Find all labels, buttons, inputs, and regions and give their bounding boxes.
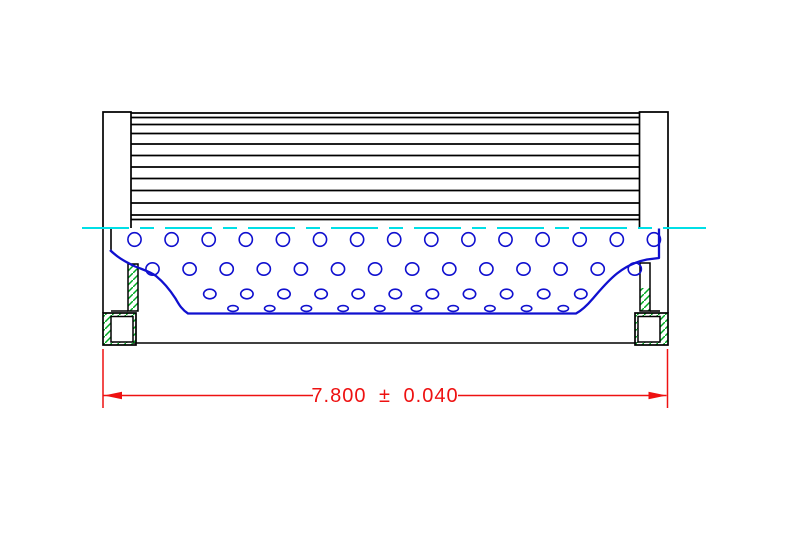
pleated-media-wraps (131, 113, 640, 220)
cad-drawing-page: 7.800 ± 0.040 (0, 0, 789, 546)
dimension-text: 7.800 ± 0.040 (311, 385, 458, 407)
perforated-core (110, 229, 661, 314)
dimension-annotation: 7.800 ± 0.040 (103, 349, 668, 408)
filter-element-section-drawing: 7.800 ± 0.040 (0, 0, 789, 546)
